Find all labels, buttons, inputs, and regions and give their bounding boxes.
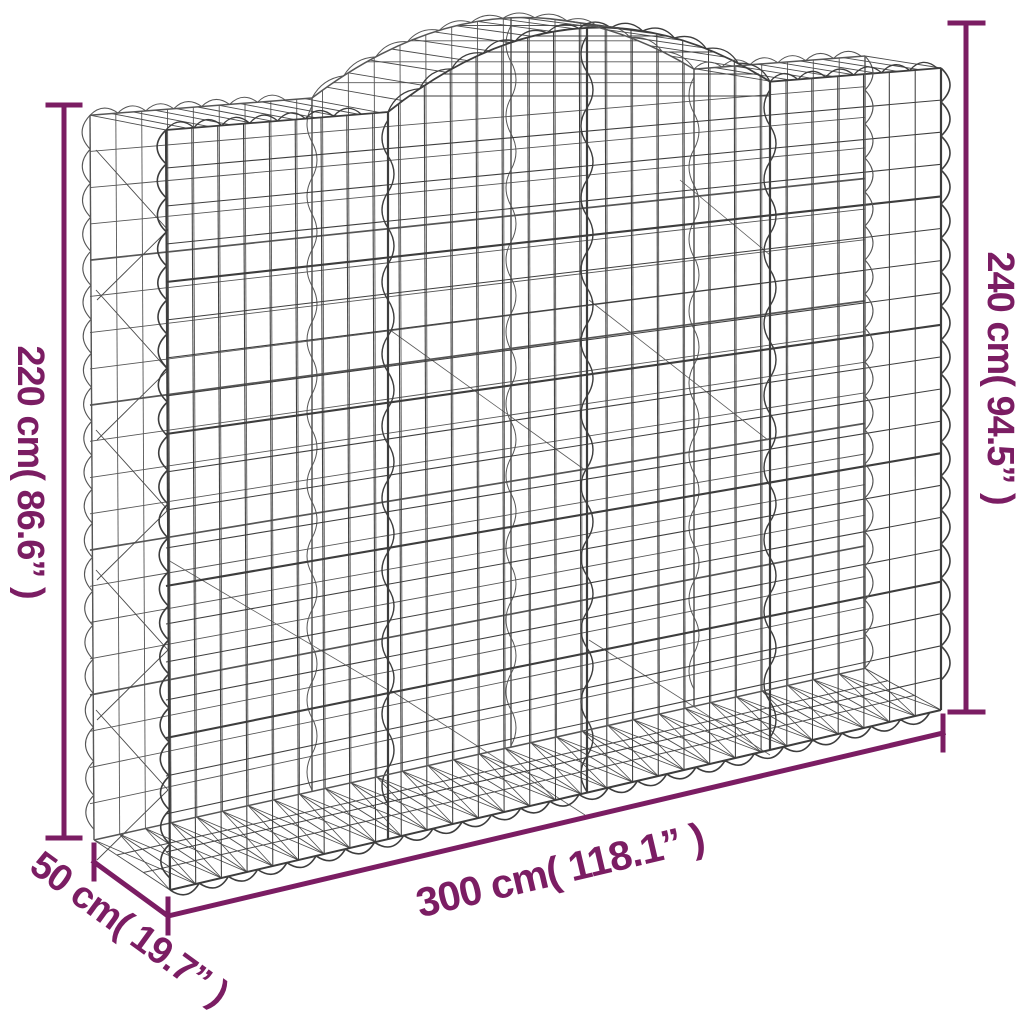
dimension-labels: 220 cm( 86.6” ) 240 cm( 94.5” ) 300 cm( …: [9, 251, 1021, 1014]
dim-line-total-height: [950, 23, 983, 712]
dim-label-width: 300 cm( 118.1” ): [412, 814, 709, 926]
product-diagram-page: 220 cm( 86.6” ) 240 cm( 94.5” ) 300 cm( …: [0, 0, 1024, 1024]
dim-label-depth: 50 cm( 19.7” ): [22, 843, 235, 1014]
gabion-dimension-diagram: 220 cm( 86.6” ) 240 cm( 94.5” ) 300 cm( …: [0, 0, 1024, 1024]
dim-line-side-height: [48, 105, 80, 838]
dim-label-side-height: 220 cm( 86.6” ): [9, 345, 51, 598]
dim-label-total-height: 240 cm( 94.5” ): [979, 251, 1021, 504]
